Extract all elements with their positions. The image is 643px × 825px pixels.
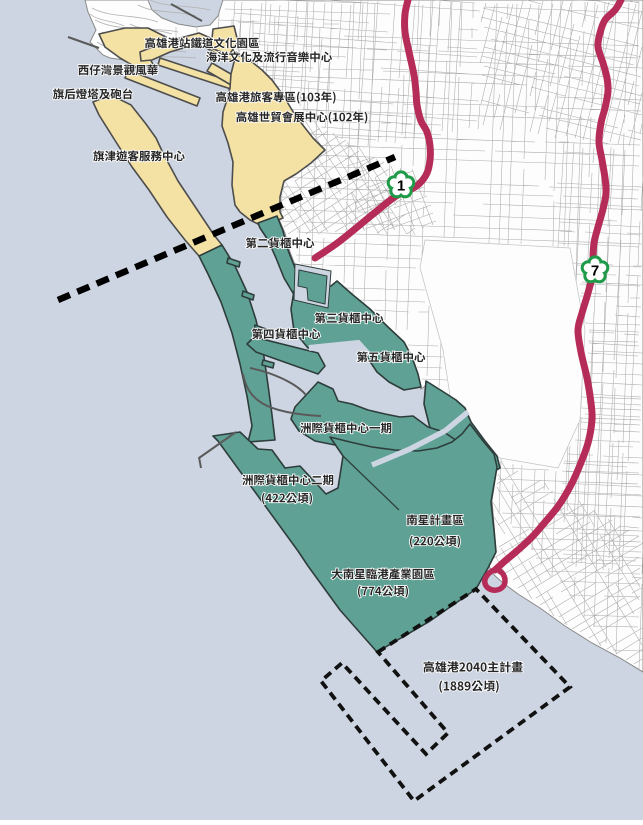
svg-text:1: 1: [397, 178, 405, 195]
svg-text:7: 7: [591, 263, 599, 280]
